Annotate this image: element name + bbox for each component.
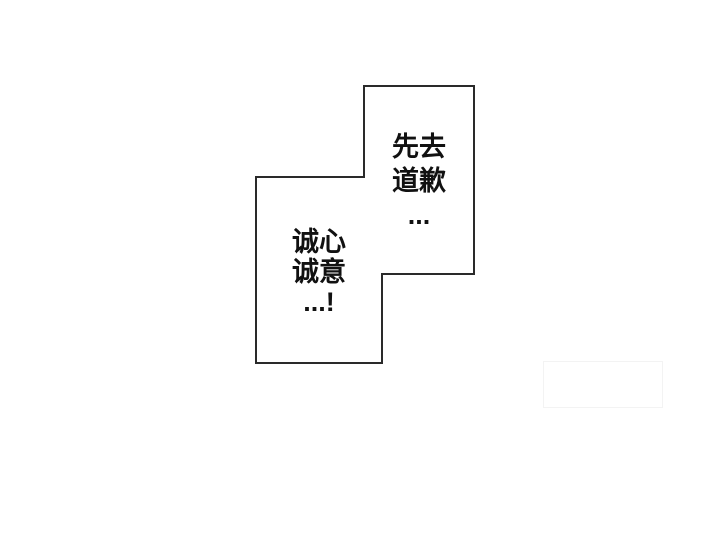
- speech-bubble-left-text: 诚心 诚意 ...!: [256, 227, 382, 317]
- speech-line-2: 诚意: [256, 257, 382, 287]
- speech-line-1: 先去: [364, 130, 474, 164]
- speech-line-2: 道歉: [364, 164, 474, 198]
- speech-line-1: 诚心: [256, 227, 382, 257]
- faint-watermark-box: [543, 361, 663, 408]
- comic-page: { "panel": { "background_color": "#fffff…: [0, 0, 720, 542]
- speech-bubble-right-text: 先去 道歉 ...: [364, 130, 474, 232]
- speech-line-ellipsis-exclaim: ...!: [256, 287, 382, 317]
